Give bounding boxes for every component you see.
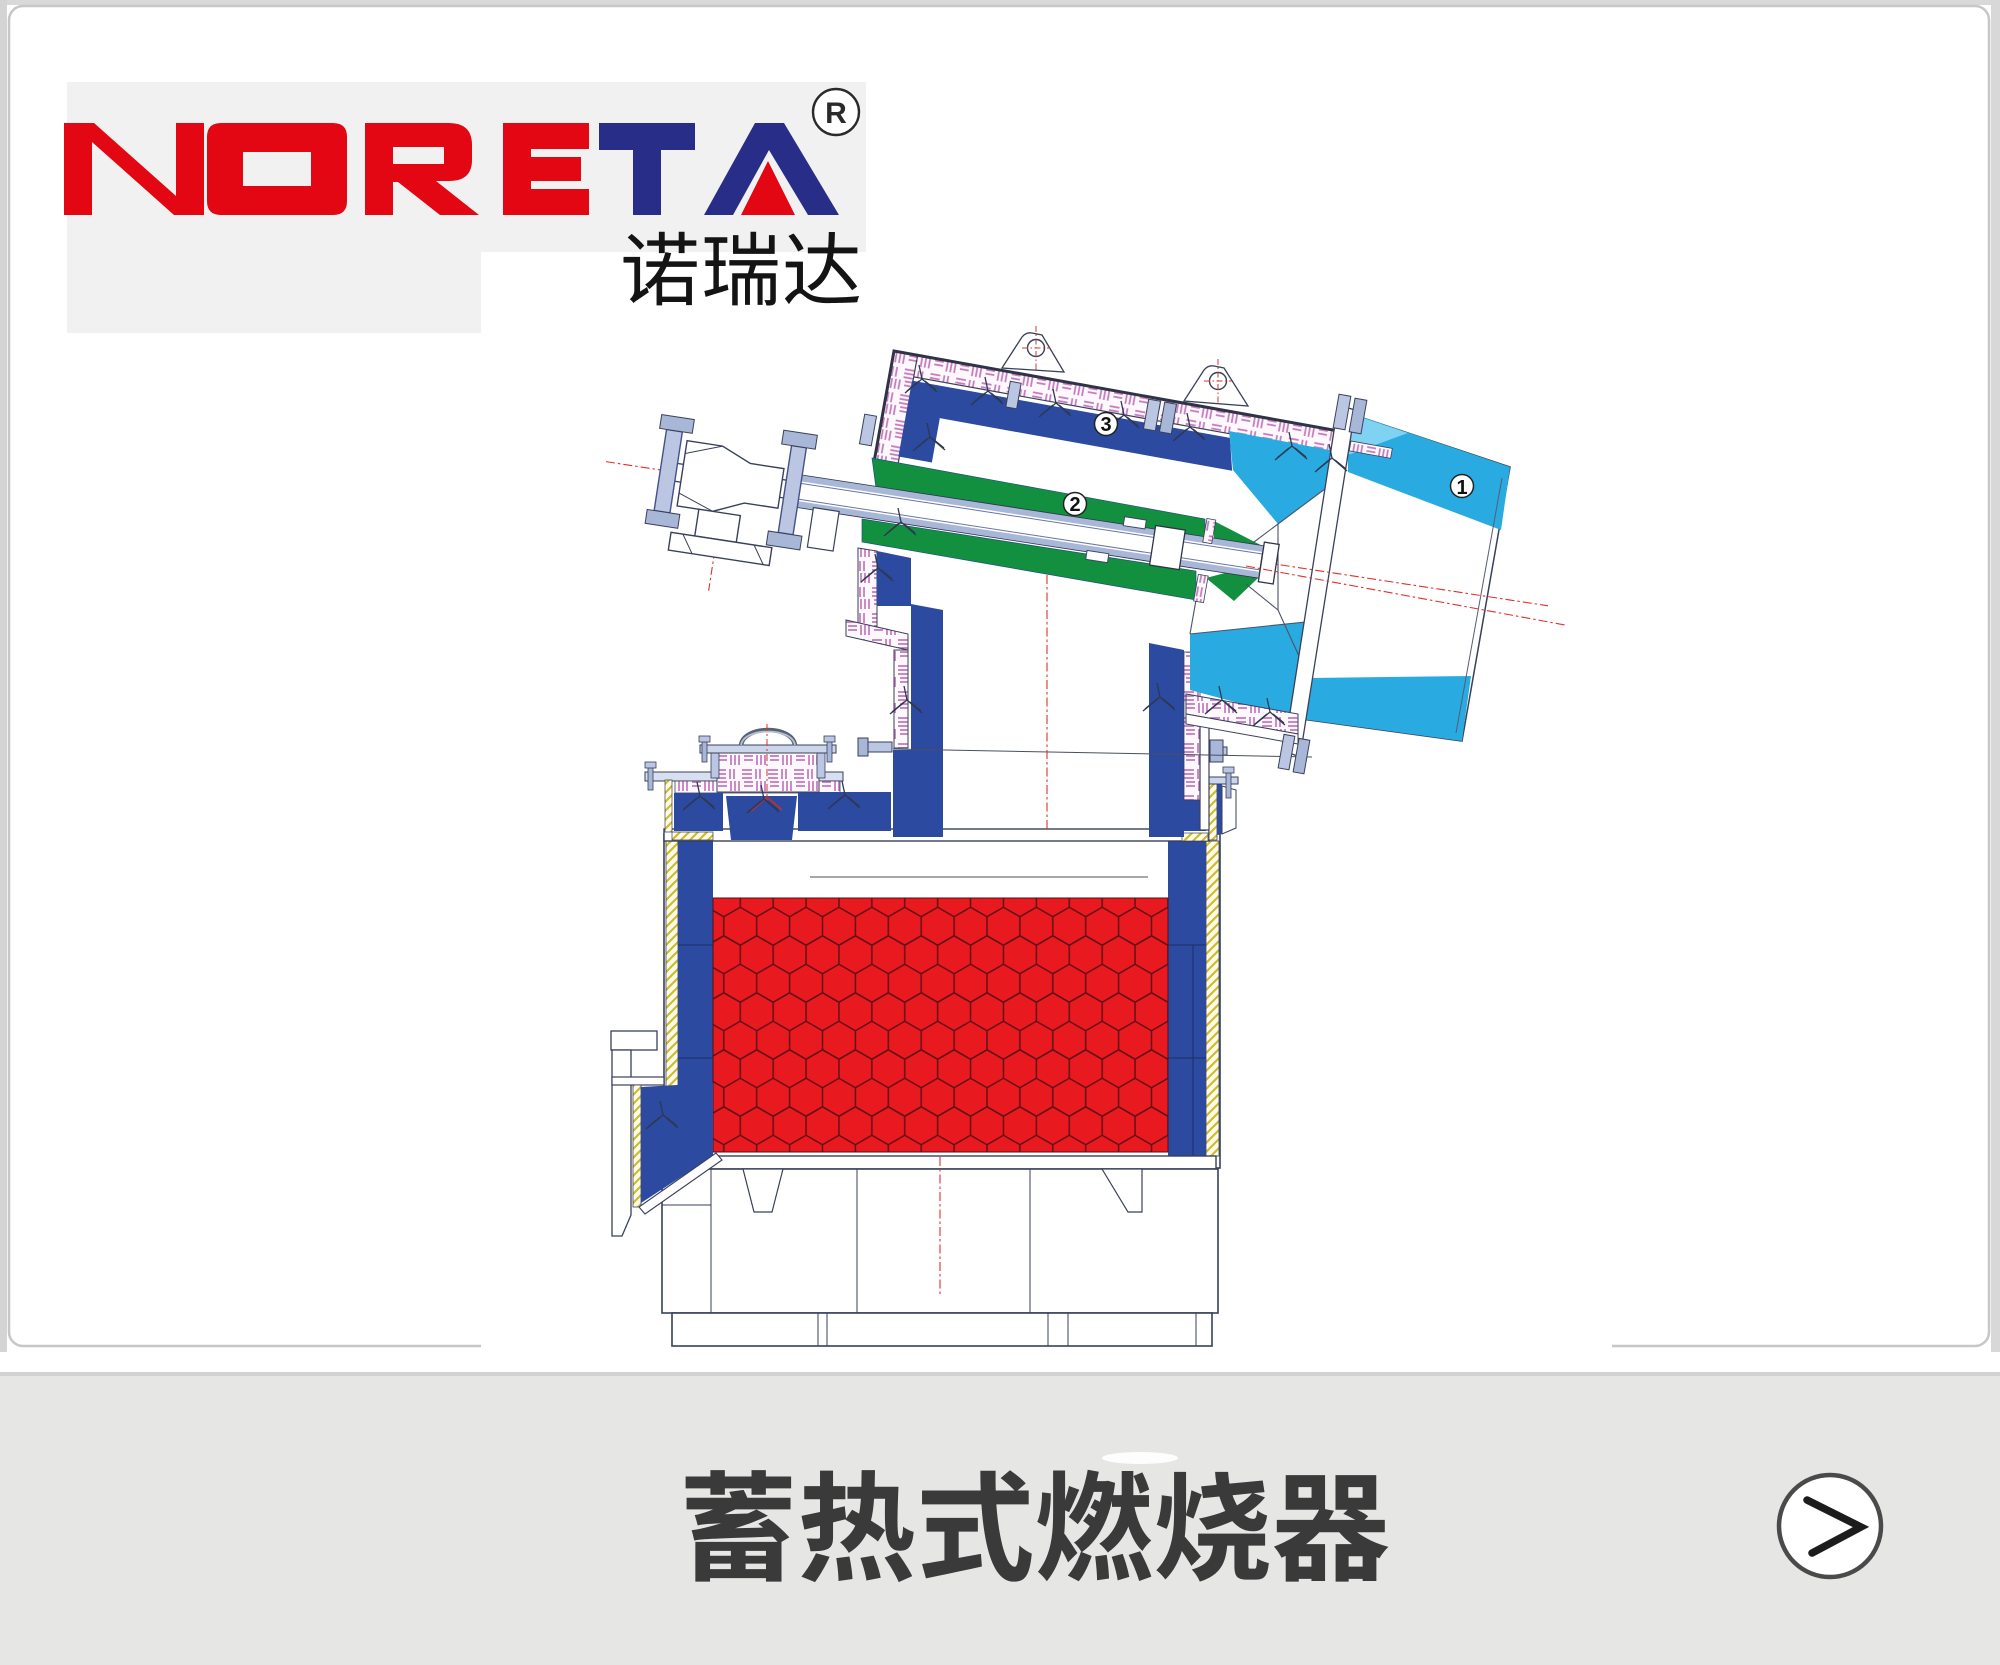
svg-text:2: 2	[1069, 494, 1080, 516]
svg-text:1: 1	[1456, 477, 1467, 499]
svg-text:R: R	[825, 97, 847, 130]
svg-text:3: 3	[1100, 414, 1111, 436]
